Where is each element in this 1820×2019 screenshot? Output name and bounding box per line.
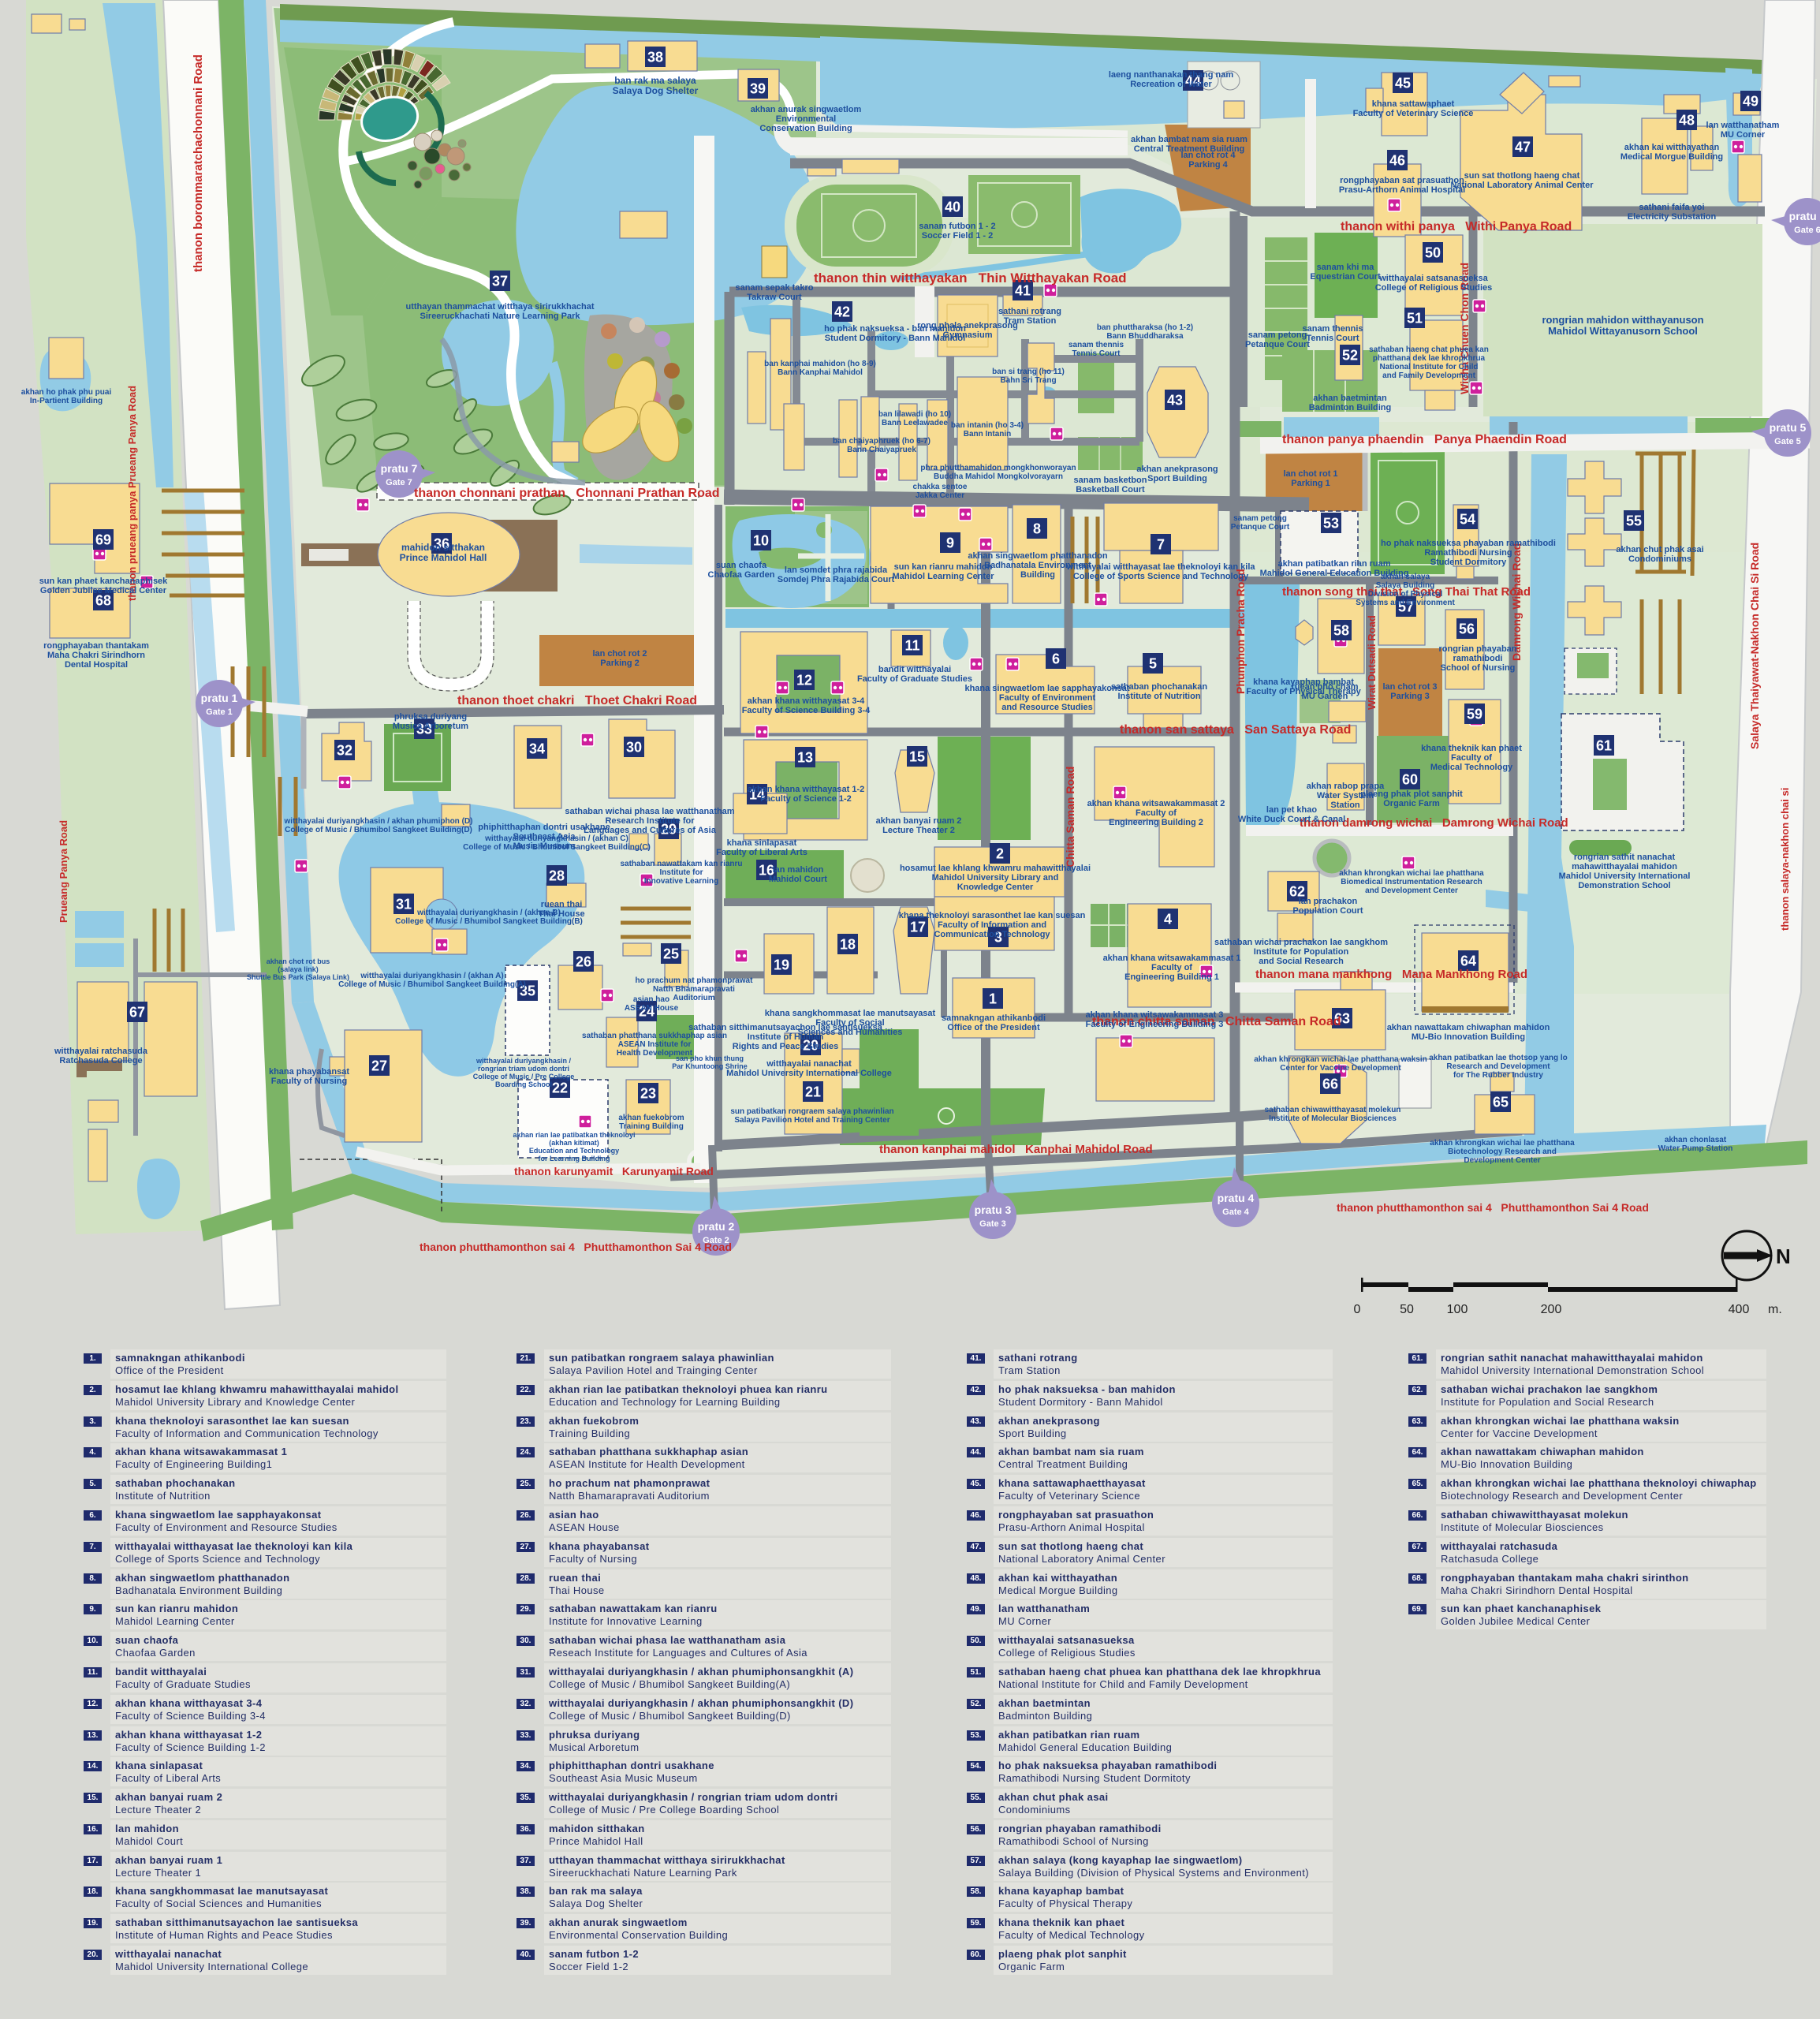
svg-text:30: 30 bbox=[626, 740, 642, 756]
svg-text:9: 9 bbox=[946, 536, 954, 551]
svg-text:rongrian sathit nanachatmahawi: rongrian sathit nanachatmahawitthayalai … bbox=[1559, 853, 1691, 890]
svg-text:witthayalai duriyangkhasin / a: witthayalai duriyangkhasin / akhan phumi… bbox=[284, 817, 473, 834]
svg-text:mahidon sitthakanPrince Mahido: mahidon sitthakanPrince Mahidol Hall bbox=[400, 542, 487, 563]
svg-text:akhan ho phak phu puaiIn-Parti: akhan ho phak phu puaiIn-Partient Buildi… bbox=[21, 388, 112, 405]
svg-text:100: 100 bbox=[1447, 1303, 1468, 1316]
svg-text:23: 23 bbox=[640, 1086, 656, 1102]
svg-text:200: 200 bbox=[1541, 1303, 1562, 1316]
svg-text:akhan chonlasatWater Pump Stat: akhan chonlasatWater Pump Station bbox=[1658, 1136, 1733, 1153]
svg-text:akhan baetmintanBadminton Buil: akhan baetmintanBadminton Building bbox=[1309, 394, 1391, 412]
svg-text:akhan chut phak asaiCondominiu: akhan chut phak asaiCondominiums bbox=[1616, 545, 1703, 564]
svg-text:rongrian mahidon witthayanuson: rongrian mahidon witthayanusonMahidol Wi… bbox=[1542, 314, 1703, 337]
svg-text:Damrong Wichai Road: Damrong Wichai Road bbox=[1510, 543, 1523, 661]
svg-text:8: 8 bbox=[1033, 521, 1041, 537]
svg-text:34: 34 bbox=[529, 741, 545, 757]
svg-text:thanon phutthamonthon sai 4: thanon phutthamonthon sai 4 Phutthamonth… bbox=[420, 1241, 732, 1253]
svg-text:rongphayaban sat prasuathonPra: rongphayaban sat prasuathonPrasu-Arthorn… bbox=[1339, 176, 1465, 195]
svg-text:sathani rotrangTram Station: sathani rotrangTram Station bbox=[998, 307, 1061, 326]
svg-text:61: 61 bbox=[1596, 738, 1612, 754]
svg-text:sanam thennisTennis Court: sanam thennisTennis Court bbox=[1302, 324, 1363, 343]
svg-text:sun kan rianru mahidonMahidol: sun kan rianru mahidonMahidol Learning C… bbox=[893, 562, 995, 581]
svg-text:sun sat thotlong haeng chatNat: sun sat thotlong haeng chatNational Labo… bbox=[1450, 171, 1594, 190]
svg-text:thanon mana mankhong Mana Ma: thanon mana mankhong Mana Mankhong Road bbox=[1255, 968, 1527, 981]
svg-text:lan chot rot 2Parking 2: lan chot rot 2Parking 2 bbox=[592, 649, 647, 668]
svg-text:13: 13 bbox=[797, 750, 813, 766]
svg-text:48: 48 bbox=[1679, 113, 1695, 129]
svg-text:sun patibatkan rongraem salaya: sun patibatkan rongraem salaya phawinlia… bbox=[730, 1107, 893, 1125]
svg-text:sanam futbon 1 - 2Soccer Field: sanam futbon 1 - 2Soccer Field 1 - 2 bbox=[919, 222, 995, 241]
svg-text:5: 5 bbox=[1149, 656, 1157, 672]
svg-text:akhan kai witthayathanMedical: akhan kai witthayathanMedical Morgue Bui… bbox=[1620, 143, 1723, 162]
svg-text:pratu 7: pratu 7 bbox=[381, 462, 418, 475]
svg-text:lan prachakonPopulation Court: lan prachakonPopulation Court bbox=[1292, 897, 1363, 916]
svg-text:thanon karunyamit Karunyamit: thanon karunyamit Karunyamit Road bbox=[514, 1165, 714, 1177]
svg-text:khana phayabansatFaculty of Nu: khana phayabansatFaculty of Nursing bbox=[269, 1067, 349, 1086]
svg-text:10: 10 bbox=[753, 533, 769, 549]
svg-text:thanon phutthamonthon sai 4: thanon phutthamonthon sai 4 Phutthamonth… bbox=[1337, 1201, 1649, 1214]
svg-text:7: 7 bbox=[1157, 537, 1165, 553]
svg-text:ban phuttharaksa (ho 1-2)Bann: ban phuttharaksa (ho 1-2)Bann Bhuddharak… bbox=[1097, 323, 1193, 341]
svg-text:37: 37 bbox=[492, 274, 508, 289]
svg-text:60: 60 bbox=[1402, 772, 1418, 788]
svg-text:54: 54 bbox=[1460, 512, 1475, 528]
svg-text:sathaban haeng chat phuea kanp: sathaban haeng chat phuea kanphatthana d… bbox=[1369, 345, 1489, 380]
svg-text:51: 51 bbox=[1407, 311, 1423, 327]
svg-text:thanon kanphai mahidol Kanph: thanon kanphai mahidol Kanphai Mahidol R… bbox=[879, 1143, 1153, 1156]
svg-text:sun kan phaet kanchanaphisekGo: sun kan phaet kanchanaphisekGolden Jubil… bbox=[39, 577, 168, 595]
svg-text:ban si trang (ho 11)Bahn Sri T: ban si trang (ho 11)Bahn Sri Trang bbox=[992, 368, 1065, 385]
svg-text:52: 52 bbox=[1342, 348, 1358, 364]
svg-text:12: 12 bbox=[796, 673, 812, 689]
svg-text:thanon chonnani prathan Chon: thanon chonnani prathan Chonnani Prathan… bbox=[414, 487, 720, 500]
svg-text:Gate 6: Gate 6 bbox=[1794, 226, 1820, 235]
svg-text:sathaban phochanakanInstitute: sathaban phochanakanInstitute of Nutriti… bbox=[1111, 682, 1208, 701]
svg-text:pratu 6: pratu 6 bbox=[1789, 210, 1820, 222]
svg-text:akhan anekprasongSport Buildin: akhan anekprasongSport Building bbox=[1136, 465, 1218, 483]
svg-text:65: 65 bbox=[1493, 1095, 1509, 1110]
svg-text:50: 50 bbox=[1425, 245, 1441, 261]
svg-text:Gate 7: Gate 7 bbox=[386, 478, 412, 487]
svg-text:thanon salaya-nakhon chai si: thanon salaya-nakhon chai si bbox=[1779, 788, 1791, 931]
svg-text:45: 45 bbox=[1395, 76, 1411, 91]
svg-text:ban kanphai mahidon (ho 8-9)Ba: ban kanphai mahidon (ho 8-9)Bann Kanphai… bbox=[764, 360, 876, 377]
svg-text:66: 66 bbox=[1322, 1077, 1338, 1092]
svg-text:0: 0 bbox=[1354, 1303, 1361, 1316]
svg-text:Gate 3: Gate 3 bbox=[979, 1219, 1006, 1229]
svg-text:thanon thin witthayakan Thin: thanon thin witthayakan Thin Witthayakan… bbox=[814, 271, 1127, 285]
svg-text:witthayalai witthayasat lae th: witthayalai witthayasat lae theknoloyi k… bbox=[1065, 562, 1255, 581]
svg-text:thanon withi panya Withi Pan: thanon withi panya Withi Panya Road bbox=[1341, 220, 1572, 233]
svg-text:pratu 4: pratu 4 bbox=[1218, 1192, 1255, 1204]
svg-text:suan chaofaChaofaa Garden: suan chaofaChaofaa Garden bbox=[708, 561, 775, 580]
svg-text:pratu 2: pratu 2 bbox=[698, 1220, 735, 1233]
svg-text:2: 2 bbox=[996, 846, 1004, 862]
svg-text:sathaban chiwawitthayasat mole: sathaban chiwawitthayasat molekunInstitu… bbox=[1265, 1106, 1401, 1123]
svg-text:khana sinlapasatFaculty of Lib: khana sinlapasatFaculty of Liberal Arts bbox=[716, 838, 807, 857]
svg-text:chakka sentoeJakka Center: chakka sentoeJakka Center bbox=[913, 483, 968, 500]
svg-text:400: 400 bbox=[1729, 1303, 1750, 1316]
svg-text:38: 38 bbox=[647, 50, 663, 65]
svg-text:sathani faifa yoiElectricity S: sathani faifa yoiElectricity Substation bbox=[1628, 203, 1717, 222]
svg-text:m.: m. bbox=[1768, 1303, 1782, 1316]
svg-text:ban rak ma salayaSalaya Dog Sh: ban rak ma salayaSalaya Dog Shelter bbox=[613, 75, 699, 96]
svg-text:Gate 4: Gate 4 bbox=[1222, 1207, 1250, 1217]
svg-text:26: 26 bbox=[576, 954, 591, 970]
svg-text:Wirat Dutsadi Road: Wirat Dutsadi Road bbox=[1366, 615, 1378, 710]
svg-text:Salaya Thaiyawat-Nakhon Chai S: Salaya Thaiyawat-Nakhon Chai Si Road bbox=[1748, 543, 1761, 749]
svg-text:lan chot rot 3Parking 3: lan chot rot 3Parking 3 bbox=[1382, 682, 1437, 701]
svg-text:15: 15 bbox=[909, 749, 925, 765]
svg-text:Gate 5: Gate 5 bbox=[1774, 437, 1801, 446]
svg-text:31: 31 bbox=[396, 897, 412, 912]
svg-text:27: 27 bbox=[371, 1058, 387, 1074]
svg-text:san pho khun thungPar Khuntoon: san pho khun thungPar Khuntoong Shrine bbox=[672, 1054, 748, 1070]
svg-text:53: 53 bbox=[1323, 516, 1339, 532]
svg-text:50: 50 bbox=[1400, 1303, 1414, 1316]
svg-text:58: 58 bbox=[1333, 623, 1349, 639]
svg-text:pratu 1: pratu 1 bbox=[201, 692, 238, 704]
svg-text:4: 4 bbox=[1164, 912, 1172, 927]
svg-text:pratu 3: pratu 3 bbox=[975, 1204, 1012, 1216]
svg-text:akhan khana witsawakammasat 3F: akhan khana witsawakammasat 3Faculty of … bbox=[1086, 1010, 1224, 1029]
svg-text:Gate 1: Gate 1 bbox=[206, 707, 233, 717]
svg-text:sanam petongPetanque Court: sanam petongPetanque Court bbox=[1231, 514, 1290, 532]
svg-text:lan chot rot 1Parking 1: lan chot rot 1Parking 1 bbox=[1283, 469, 1337, 488]
svg-text:56: 56 bbox=[1459, 621, 1475, 637]
svg-text:ban chaiyaphruek (ho 6-7)Bann: ban chaiyaphruek (ho 6-7)Bann Chaiyaprue… bbox=[833, 437, 931, 454]
svg-text:pratu 5: pratu 5 bbox=[1770, 421, 1807, 434]
svg-text:thanon san sattaya San Satta: thanon san sattaya San Sattaya Road bbox=[1120, 723, 1351, 737]
svg-text:phruksa duriyangMusica Arboret: phruksa duriyangMusica Arboretum bbox=[393, 712, 468, 731]
svg-text:21: 21 bbox=[805, 1084, 821, 1100]
svg-text:lan somdet phra rajabidaSomdej: lan somdet phra rajabidaSomdej Phra Raja… bbox=[778, 565, 895, 584]
svg-text:25: 25 bbox=[663, 946, 679, 962]
svg-text:67: 67 bbox=[129, 1005, 145, 1021]
svg-text:witthayalai ratchasudaRatchasu: witthayalai ratchasudaRatchasuda College bbox=[54, 1047, 148, 1065]
svg-text:64: 64 bbox=[1460, 954, 1476, 969]
svg-text:akhan khana witthayasat 3-4Fac: akhan khana witthayasat 3-4Faculty of Sc… bbox=[742, 696, 871, 715]
svg-text:ruean thaiThai House: ruean thaiThai House bbox=[538, 900, 584, 919]
svg-text:Prueang Panya Road: Prueang Panya Road bbox=[58, 820, 69, 923]
svg-text:akhan khana witthayasat 1-2Fac: akhan khana witthayasat 1-2Faculty of Sc… bbox=[748, 785, 865, 804]
svg-text:46: 46 bbox=[1389, 153, 1405, 169]
svg-text:11: 11 bbox=[904, 638, 919, 654]
svg-text:thanon borommaratchachonnani R: thanon borommaratchachonnani Road bbox=[192, 54, 205, 272]
svg-text:N: N bbox=[1776, 1245, 1791, 1268]
svg-text:utthayan thammachat witthaya s: utthayan thammachat witthaya sirirukkhac… bbox=[405, 302, 594, 321]
svg-text:samnakngan athikanbodiOffice o: samnakngan athikanbodiOffice of the Pres… bbox=[942, 1013, 1046, 1032]
svg-text:19: 19 bbox=[774, 957, 789, 973]
svg-text:Phunphon Pracha Road: Phunphon Pracha Road bbox=[1234, 569, 1247, 694]
svg-text:thanon panya phaendin Panya: thanon panya phaendin Panya Phaendin Roa… bbox=[1282, 433, 1567, 446]
svg-text:42: 42 bbox=[834, 304, 850, 320]
svg-text:akhan fuekobromTraining Buildi: akhan fuekobromTraining Building bbox=[618, 1114, 684, 1131]
svg-text:thanon thoet chakri Thoet Ch: thanon thoet chakri Thoet Chakri Road bbox=[457, 694, 697, 707]
svg-text:witthayalai satsanasueksaColle: witthayalai satsanasueksaCollege of Reli… bbox=[1375, 274, 1493, 293]
svg-text:43: 43 bbox=[1167, 393, 1183, 409]
svg-text:69: 69 bbox=[95, 532, 111, 548]
svg-text:28: 28 bbox=[549, 868, 565, 884]
svg-text:55: 55 bbox=[1626, 513, 1642, 529]
svg-text:sanam petongPetanque Court: sanam petongPetanque Court bbox=[1245, 330, 1310, 349]
svg-text:phra phutthamahidon mongkhonwo: phra phutthamahidon mongkhonworayanBuddh… bbox=[920, 464, 1076, 481]
svg-text:1: 1 bbox=[989, 991, 997, 1007]
svg-text:lan mahidonMahidol Court: lan mahidonMahidol Court bbox=[769, 865, 827, 884]
svg-text:6: 6 bbox=[1052, 651, 1060, 667]
svg-text:39: 39 bbox=[750, 81, 766, 97]
svg-text:Chitta Saman Road: Chitta Saman Road bbox=[1064, 767, 1076, 868]
svg-text:22: 22 bbox=[552, 1080, 568, 1096]
svg-text:thanon prueang panya Prueang P: thanon prueang panya Prueang Panya Road bbox=[126, 386, 138, 601]
svg-text:witthayalai duriyangkhasin / (: witthayalai duriyangkhasin / (akhan A)Co… bbox=[338, 972, 526, 989]
svg-text:32: 32 bbox=[337, 743, 352, 759]
svg-text:sanam thennisTennis Court: sanam thennisTennis Court bbox=[1069, 341, 1124, 358]
svg-text:sanam khi maEquestrian Court: sanam khi maEquestrian Court bbox=[1310, 263, 1381, 282]
svg-text:59: 59 bbox=[1467, 707, 1482, 722]
svg-text:17: 17 bbox=[910, 920, 926, 935]
svg-text:49: 49 bbox=[1743, 94, 1758, 110]
svg-text:18: 18 bbox=[840, 937, 856, 953]
svg-text:akhan banyai ruam 2Lecture The: akhan banyai ruam 2Lecture Theater 2 bbox=[876, 816, 962, 835]
svg-text:47: 47 bbox=[1515, 140, 1531, 155]
svg-text:ban lilawadi (ho 10)Bann Leela: ban lilawadi (ho 10)Bann Leelawadee bbox=[878, 410, 951, 427]
svg-text:sanam basketbonBasketball Cour: sanam basketbonBasketball Court bbox=[1074, 476, 1147, 494]
svg-text:40: 40 bbox=[945, 200, 960, 215]
